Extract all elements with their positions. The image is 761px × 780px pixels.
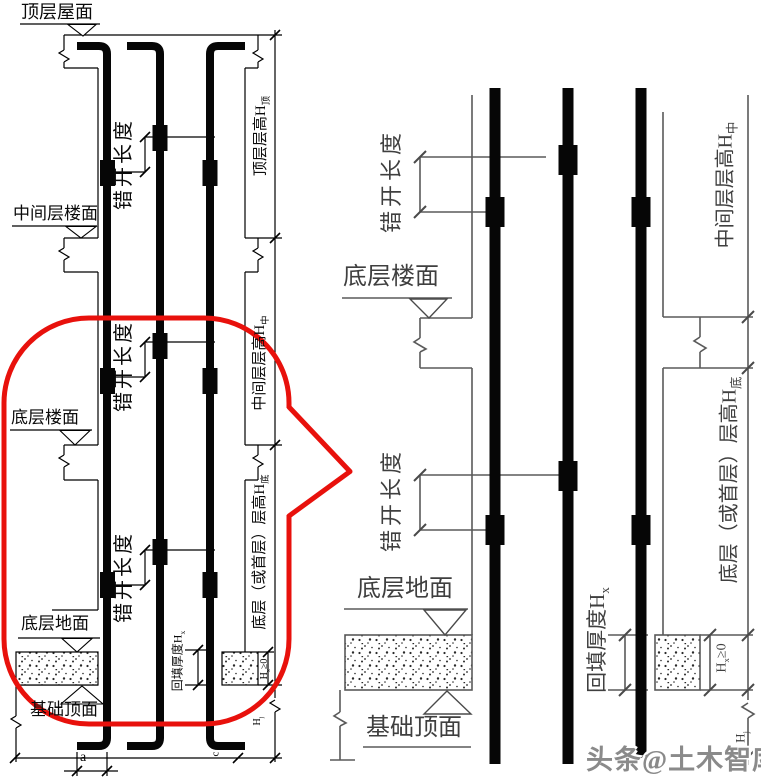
label-foundation-top: 基础顶面 [366,716,462,741]
label-hx-ge-0: Hx≥0 [260,659,272,680]
label-stagger-length: 错开长度 [114,320,134,412]
label-bottom-floor: 底层楼面 [343,265,439,290]
label-roof-top: 顶层屋面 [21,3,93,22]
right-diagram-rebars [495,88,641,764]
label-backfill-thickness: 回填厚度Hx [587,587,611,693]
watermark: 头条@土木智库 [586,738,761,777]
label-stagger-length: 错开长度 [381,129,403,233]
label-dim-c: c [211,752,222,757]
label-mid-story-height: 中间层层高H中 [715,122,738,249]
left-diagram-hatch [16,652,258,685]
label-ground: 底层地面 [357,577,453,602]
label-dim-a: a [80,751,86,766]
label-bottom-story-height: 底层（或首层）层高H底 [719,377,742,584]
label-bottom-story-height: 底层（或首层）层高H底 [253,474,271,629]
label-backfill-thickness: 回填厚度Hx [172,631,187,691]
label-hj: Hj [253,717,265,726]
left-diagram-leader-arrows [60,25,103,705]
label-foundation-top: 基础顶面 [30,701,98,719]
label-stagger-length: 错开长度 [114,531,134,623]
label-top-story-height: 顶层层高H顶 [254,96,272,176]
label-stagger-length: 错开长度 [114,118,134,210]
label-hx-ge-0: Hx≥0 [715,643,730,672]
rebar-connection-detail-figure: 顶层屋面 中间层楼面 底层楼面 底层地面 基础顶面 错开长度 错开长度 错开长度… [0,0,761,780]
rebar [210,46,245,746]
label-mid-story-height: 中间层层高H中 [253,315,271,410]
label-stagger-length: 错开长度 [381,448,403,552]
label-bottom-floor: 底层楼面 [11,409,79,427]
right-diagram-hatch [345,635,700,690]
label-mid-floor: 中间层楼面 [13,205,98,223]
label-ground: 底层地面 [21,615,89,633]
